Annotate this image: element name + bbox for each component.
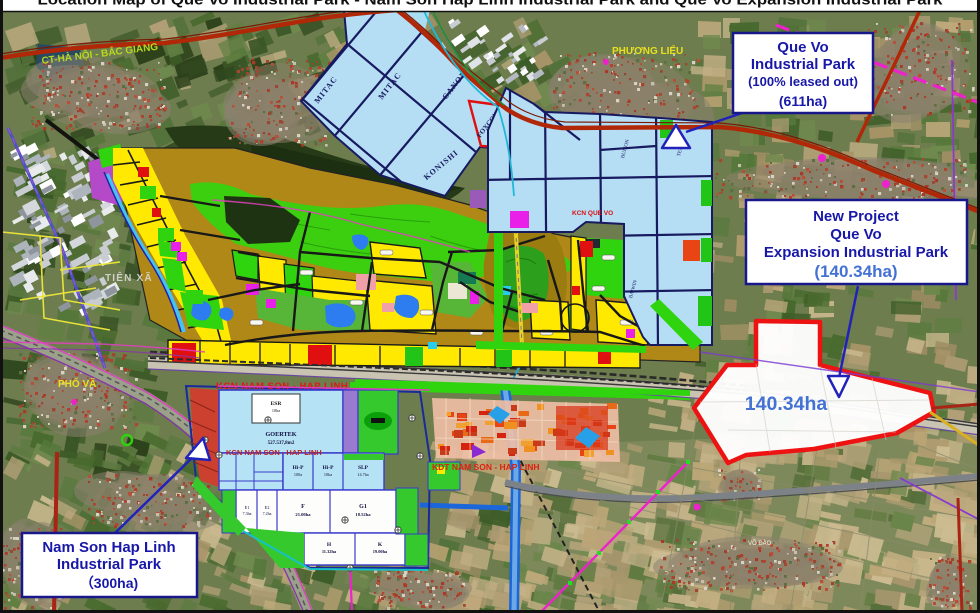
- svg-text:Que Vo: Que Vo: [777, 39, 828, 56]
- svg-text:（300ha): （300ha): [80, 575, 138, 591]
- svg-text:PHƯƠNG LIỂU: PHƯƠNG LIỂU: [612, 44, 683, 57]
- svg-text:7.2ha: 7.2ha: [263, 511, 272, 516]
- svg-text:KCN NAM SON - HAP LINH: KCN NAM SON - HAP LINH: [226, 448, 322, 457]
- svg-text:Que Vo: Que Vo: [830, 226, 881, 243]
- svg-text:KCN QUE VO: KCN QUE VO: [572, 210, 613, 217]
- svg-text:10ha: 10ha: [272, 408, 280, 413]
- svg-text:GOERTEK: GOERTEK: [265, 431, 296, 438]
- svg-text:(140.34ha): (140.34ha): [814, 262, 897, 281]
- svg-text:Industrial Park: Industrial Park: [57, 556, 162, 573]
- svg-text:H: H: [327, 542, 332, 548]
- svg-text:10ha: 10ha: [324, 472, 332, 477]
- svg-text:Industrial Park: Industrial Park: [751, 56, 856, 73]
- svg-text:(100% leased out): (100% leased out): [748, 74, 858, 89]
- svg-text:SLP: SLP: [358, 465, 369, 471]
- svg-text:(611ha): (611ha): [779, 93, 827, 109]
- svg-text:100a: 100a: [294, 472, 302, 477]
- svg-text:140.34ha: 140.34ha: [745, 393, 828, 415]
- svg-text:VÕ ĐÀO: VÕ ĐÀO: [748, 540, 772, 547]
- svg-text:Expansion Industrial Park: Expansion Industrial Park: [764, 244, 949, 261]
- svg-text:KDT NAM SON - HAP LINH: KDT NAM SON - HAP LINH: [432, 462, 540, 472]
- svg-text:Hi-P: Hi-P: [293, 465, 305, 471]
- svg-text:ESR: ESR: [271, 401, 283, 407]
- svg-text:527.537,8m2: 527.537,8m2: [268, 441, 295, 446]
- svg-text:PHỐ VÃ: PHỐ VÃ: [58, 376, 96, 390]
- svg-text:14.7ha: 14.7ha: [357, 472, 368, 477]
- svg-text:TIÊN XÃ: TIÊN XÃ: [105, 271, 153, 284]
- svg-text:Location Map of Que Vo Industr: Location Map of Que Vo Industrial Park -…: [38, 0, 944, 9]
- svg-text:19.00ha: 19.00ha: [373, 549, 388, 554]
- svg-text:7.3ha: 7.3ha: [243, 511, 252, 516]
- svg-text:New Project: New Project: [813, 208, 899, 225]
- svg-text:11.32ha: 11.32ha: [322, 549, 337, 554]
- svg-text:21.00ha: 21.00ha: [295, 512, 311, 517]
- svg-text:K: K: [378, 542, 383, 548]
- svg-text:G1: G1: [359, 504, 367, 510]
- svg-text:18.52ha: 18.52ha: [355, 512, 371, 517]
- svg-text:E2: E2: [265, 505, 270, 510]
- svg-text:Nam Son Hap Linh: Nam Son Hap Linh: [42, 539, 175, 556]
- svg-text:F: F: [301, 504, 305, 510]
- svg-text:E1: E1: [245, 505, 250, 510]
- svg-text:Hi-P: Hi-P: [323, 465, 335, 471]
